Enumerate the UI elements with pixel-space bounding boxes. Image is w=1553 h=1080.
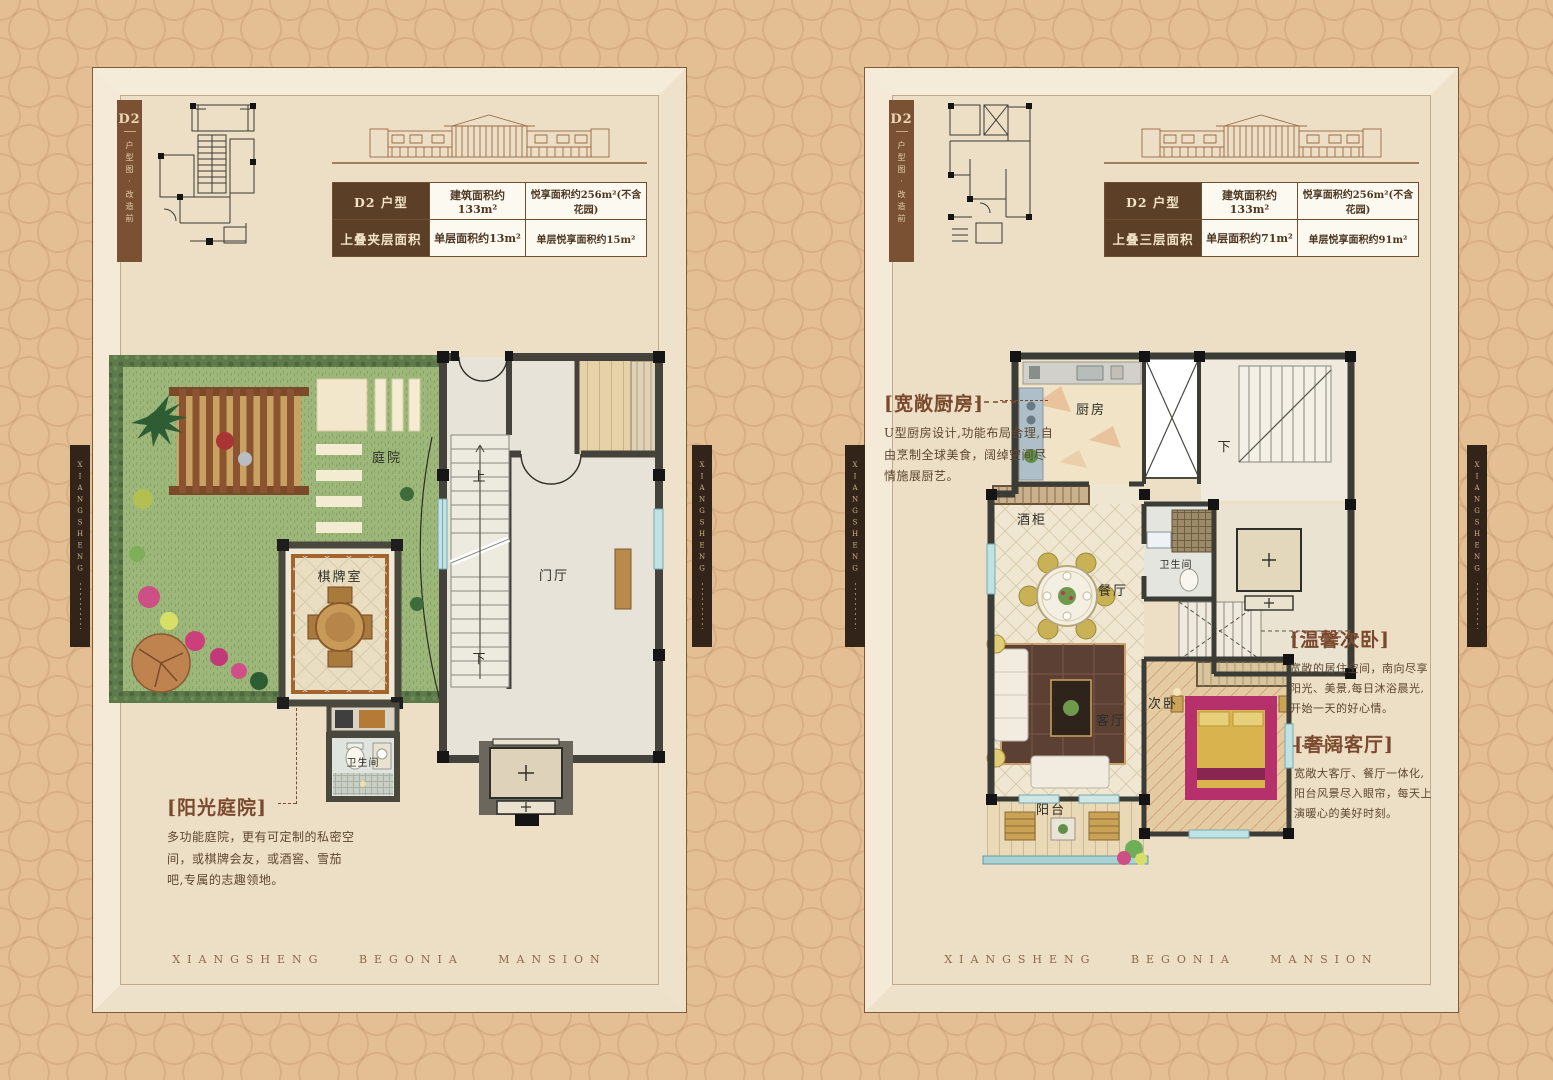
note-title: [阳光庭院] [167, 793, 357, 820]
chess-room: 棋牌室 [277, 539, 403, 709]
label-kitchen: 厨房 [1076, 402, 1106, 418]
side-brand-bar: XIANGSHENG [1467, 445, 1487, 647]
mezzanine-floor-plan: 庭院 棋牌室 [107, 349, 671, 851]
label-stair-down: 下 [472, 652, 487, 667]
unit-code: D2 [890, 112, 912, 127]
neighbor-entry [1237, 529, 1301, 610]
footer-brand: XIANGSHENG BEGONIA MANSION [120, 953, 659, 966]
note-body: 宽敞的居住空间，南向尽享阳光、美景,每日沐浴晨光,开始一天的好心情。 [1290, 659, 1432, 718]
side-brand-subtext [855, 583, 856, 629]
side-brand-label: XIANGSHENG [851, 461, 859, 576]
pergola [169, 387, 309, 495]
divider [124, 131, 136, 132]
unit-tag-strip: D2 户型图·改造前 [117, 100, 142, 262]
area-spec-table: D2 户型 建筑面积约133m² 悦享面积约256m²(不含花园) 上叠三层面积… [1104, 182, 1419, 257]
label-dining: 餐厅 [1098, 583, 1128, 599]
table-head-floor: 上叠三层面积 [1105, 220, 1202, 257]
note-bedroom: [温馨次卧] 宽敞的居住空间，南向尽享阳光、美景,每日沐浴晨光,开始一天的好心情… [1290, 625, 1432, 718]
leader-line [1000, 400, 1048, 401]
leader-line [278, 803, 296, 804]
panel-mezzanine-floor: D2 户型图·改造前 [93, 68, 686, 1012]
side-brand-bar: XIANGSHENG [70, 445, 90, 647]
side-brand-label: XIANGSHENG [1473, 461, 1481, 576]
label-bathroom: 卫生间 [1160, 558, 1193, 571]
table-floor-area: 单层面积约13m² [430, 220, 526, 257]
side-brand-label: XIANGSHENG [698, 461, 706, 576]
label-stair-down: 下 [1217, 440, 1232, 455]
label-living: 客厅 [1096, 713, 1126, 729]
key-plan-sketch [922, 99, 1037, 259]
elevator-shaft [1145, 358, 1199, 478]
note-body: 宽敞大客厅、餐厅一体化,阳台风景尽入眼帘，每天上演暖心的美好时刻。 [1294, 764, 1434, 823]
table-head-floor: 上叠夹层面积 [333, 220, 430, 257]
key-plan-sketch [150, 99, 265, 259]
table-floor-enjoy-area: 单层悦享面积约15m² [526, 220, 647, 257]
label-foyer: 门厅 [539, 569, 569, 584]
label-bedroom: 次卧 [1148, 696, 1178, 712]
side-brand-subtext [702, 583, 703, 629]
label-chess-room: 棋牌室 [317, 569, 362, 585]
garden-stone [132, 634, 190, 692]
table-floor-enjoy-area: 单层悦享面积约91m² [1298, 220, 1419, 257]
note-body: U型厨房设计,功能布局合理,自由烹制全球美食，阔绰空间尽情施展厨艺。 [884, 423, 1056, 488]
note-kitchen: [宽敞厨房] U型厨房设计,功能布局合理,自由烹制全球美食，阔绰空间尽情施展厨艺… [884, 389, 1056, 488]
note-title: [温馨次卧] [1290, 625, 1432, 652]
leader-line [296, 708, 297, 804]
bathroom: 卫生间 [329, 705, 397, 799]
label-stair-up: 上 [472, 470, 487, 485]
note-sun-courtyard: [阳光庭院] 多功能庭院，更有可定制的私密空间，或棋牌会友，或酒窖、雪茄吧,专属… [167, 793, 357, 892]
table-floor-area: 单层面积约71m² [1202, 220, 1298, 257]
note-title: [奢阔客厅] [1294, 730, 1434, 757]
panel-third-floor: D2 户型图·改造前 [865, 68, 1458, 1012]
label-wine-cabinet: 酒柜 [1017, 513, 1047, 528]
staircase: 上 下 [451, 435, 509, 687]
area-spec-table: D2 户型 建筑面积约133m² 悦享面积约256m²(不含花园) 上叠夹层面积… [332, 182, 647, 257]
note-body: 多功能庭院，更有可定制的私密空间，或棋牌会友，或酒窖、雪茄吧,专属的志趣领地。 [167, 827, 357, 892]
table-enjoy-area: 悦享面积约256m²(不含花园) [1298, 183, 1419, 220]
brochure-page: D2 户型图·改造前 [0, 0, 1553, 1080]
entry-porch [479, 739, 573, 826]
building-interior: 上 下 门厅 [437, 351, 665, 763]
side-brand-bar: XIANGSHENG [845, 445, 865, 647]
footer-brand: XIANGSHENG BEGONIA MANSION [892, 953, 1431, 966]
note-title: [宽敞厨房] [884, 389, 1056, 416]
table-head-unit: D2 户型 [1105, 183, 1202, 220]
table-built-area: 建筑面积约133m² [430, 183, 526, 220]
unit-code: D2 [118, 112, 140, 127]
label-bathroom: 卫生间 [347, 756, 380, 769]
table-enjoy-area: 悦享面积约256m²(不含花园) [526, 183, 647, 220]
note-living: [奢阔客厅] 宽敞大客厅、餐厅一体化,阳台风景尽入眼帘，每天上演暖心的美好时刻。 [1294, 730, 1434, 823]
side-brand-subtext [1477, 583, 1478, 629]
unit-tag-strip: D2 户型图·改造前 [889, 100, 914, 262]
table-head-unit: D2 户型 [333, 183, 430, 220]
unit-tag-caption: 户型图·改造前 [124, 141, 135, 226]
side-brand-label: XIANGSHENG [76, 461, 84, 576]
side-brand-subtext [80, 583, 81, 629]
label-balcony: 阳台 [1036, 803, 1066, 818]
label-courtyard: 庭院 [372, 450, 402, 466]
unit-tag-caption: 户型图·改造前 [896, 141, 907, 226]
divider [896, 131, 908, 132]
side-brand-bar: XIANGSHENG [692, 445, 712, 647]
table-built-area: 建筑面积约133m² [1202, 183, 1298, 220]
building-elevation-drawing [332, 107, 647, 167]
building-elevation-drawing [1104, 107, 1419, 167]
